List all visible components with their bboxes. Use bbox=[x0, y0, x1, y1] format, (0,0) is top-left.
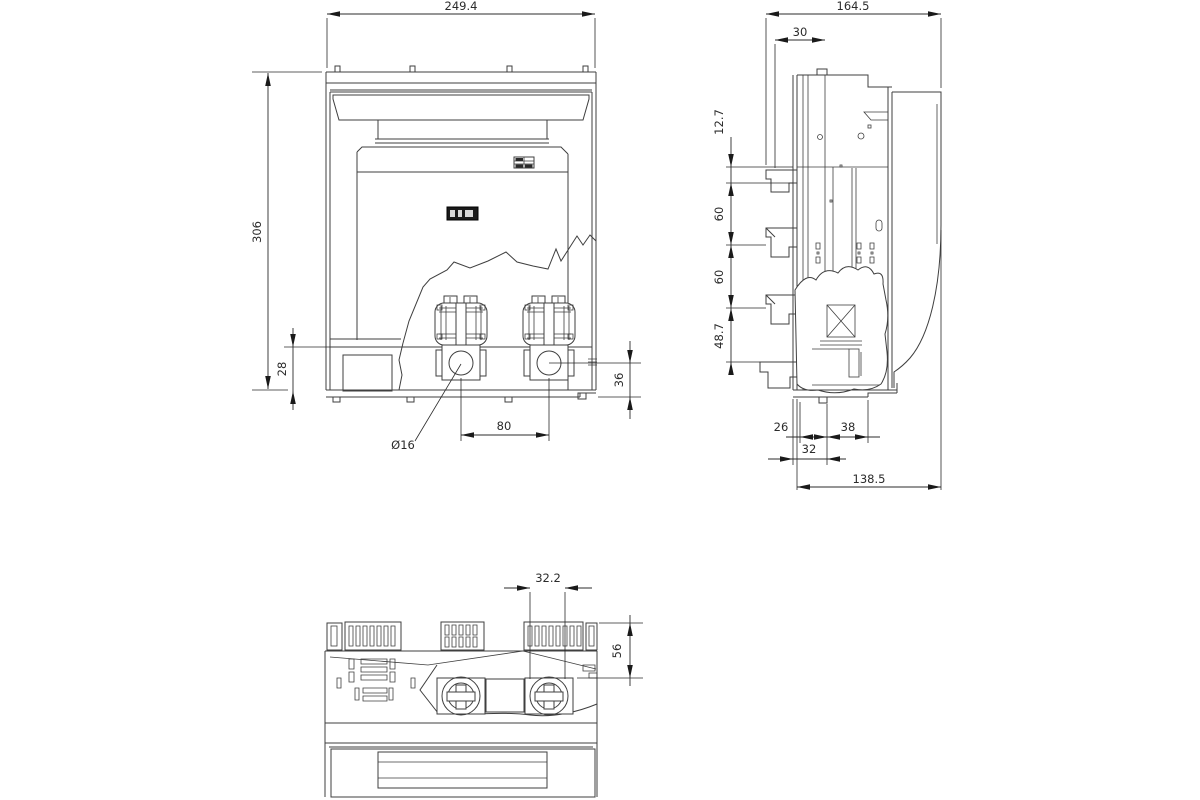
dim-front-height: 306 bbox=[250, 72, 322, 390]
dim-text-terminal-slot: 32.2 bbox=[535, 571, 561, 585]
terminal-spacer bbox=[486, 679, 524, 712]
dim-text-foot-b: 38 bbox=[841, 420, 856, 434]
busbar-tabs bbox=[760, 170, 797, 388]
technical-drawing-sheet: 249.4 306 28 80 Ø16 36 bbox=[0, 0, 1200, 800]
dim-text-rail-offset: 30 bbox=[793, 25, 808, 39]
terminal-cover-plate bbox=[343, 355, 392, 391]
breakout-section bbox=[795, 267, 888, 393]
dim-text-base-offset: 36 bbox=[612, 373, 626, 388]
switch-neck bbox=[375, 120, 549, 143]
dim-text-foot-c: 32 bbox=[802, 442, 817, 456]
dim-text-step2: 60 bbox=[712, 207, 726, 222]
nameplate-label bbox=[447, 207, 478, 220]
top-tab bbox=[410, 66, 415, 72]
top-tab bbox=[335, 66, 340, 72]
dim-rail-offset: 30 bbox=[775, 25, 825, 168]
switch-hood bbox=[333, 95, 589, 120]
top-tab bbox=[507, 66, 512, 72]
front-view bbox=[326, 66, 597, 402]
dim-side-steps: 12.7 60 60 48.7 bbox=[712, 109, 793, 375]
dim-text-front-height: 306 bbox=[250, 221, 264, 243]
terminal-bottom-right bbox=[525, 677, 573, 715]
vent-grilles bbox=[327, 622, 597, 650]
base-plate bbox=[378, 752, 547, 788]
dim-text-hole-diameter: Ø16 bbox=[391, 438, 415, 452]
bottom-view bbox=[325, 622, 597, 797]
dim-text-front-width: 249.4 bbox=[445, 0, 478, 13]
dim-text-foot-a: 26 bbox=[774, 420, 789, 434]
side-view bbox=[760, 69, 941, 403]
dim-text-base-total: 138.5 bbox=[853, 472, 886, 486]
fuse-terminal-right bbox=[523, 296, 575, 380]
fuse-terminal-left bbox=[435, 296, 487, 380]
top-tab-side bbox=[817, 69, 827, 75]
dim-text-step3: 60 bbox=[712, 270, 726, 285]
dim-front-width: 249.4 bbox=[327, 0, 595, 68]
dim-text-depth-offset: 56 bbox=[610, 644, 624, 659]
dim-text-side-depth: 164.5 bbox=[837, 0, 870, 13]
dim-text-step4: 48.7 bbox=[712, 323, 726, 349]
dim-text-step1: 12.7 bbox=[712, 109, 726, 135]
rating-label-icon bbox=[514, 157, 534, 168]
fuse-cover-arc bbox=[892, 92, 941, 388]
dim-terminal-slot: 32.2 bbox=[504, 571, 592, 679]
dim-text-hole-pitch: 80 bbox=[497, 419, 512, 433]
dimensional-drawing: 249.4 306 28 80 Ø16 36 bbox=[0, 0, 1200, 800]
top-tab bbox=[583, 66, 588, 72]
dim-terminal-band: 28 bbox=[275, 328, 330, 410]
cable-hole-left bbox=[449, 351, 473, 375]
terminal-bottom-left bbox=[437, 677, 485, 715]
dim-text-band-height: 28 bbox=[275, 362, 289, 377]
dim-hole-pitch: 80 bbox=[461, 378, 549, 441]
